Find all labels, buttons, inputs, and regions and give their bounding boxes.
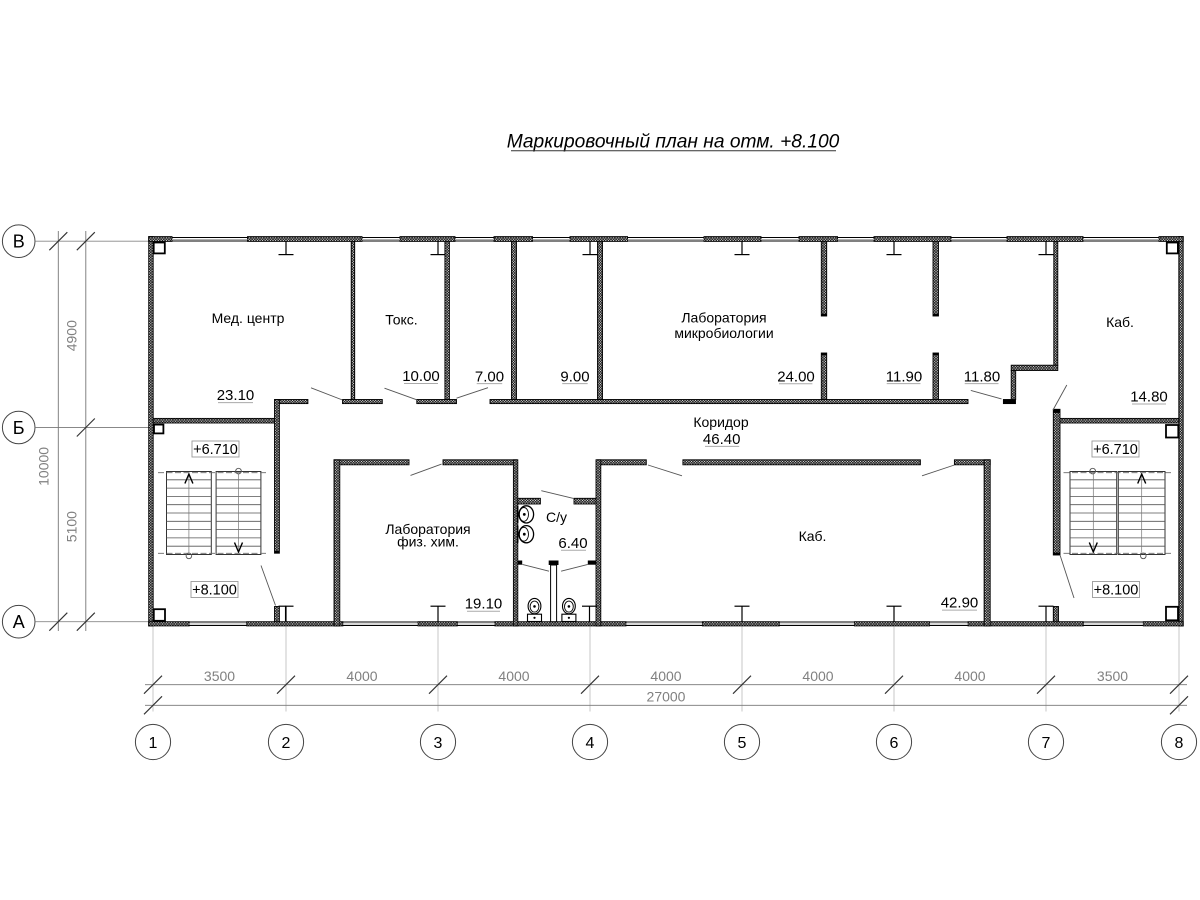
svg-text:4900: 4900 <box>63 320 79 351</box>
svg-text:10.00: 10.00 <box>402 368 440 385</box>
svg-text:4000: 4000 <box>346 668 377 684</box>
svg-text:11.80: 11.80 <box>964 368 1000 385</box>
svg-text:Лаборатория: Лаборатория <box>681 310 766 326</box>
svg-text:4: 4 <box>586 735 595 752</box>
svg-text:5100: 5100 <box>63 511 79 542</box>
svg-text:Б: Б <box>13 418 25 438</box>
svg-text:2: 2 <box>282 735 291 752</box>
svg-text:4000: 4000 <box>650 668 681 684</box>
svg-text:С/у: С/у <box>546 509 567 525</box>
svg-text:5: 5 <box>738 735 747 752</box>
svg-text:10000: 10000 <box>36 447 52 486</box>
svg-text:46.40: 46.40 <box>703 431 741 448</box>
svg-text:3500: 3500 <box>204 668 235 684</box>
svg-text:+6.710: +6.710 <box>1093 442 1138 458</box>
svg-text:14.80: 14.80 <box>1130 389 1168 406</box>
svg-text:Токс.: Токс. <box>385 312 417 328</box>
svg-text:19.10: 19.10 <box>465 596 503 613</box>
svg-text:11.90: 11.90 <box>886 368 922 385</box>
svg-text:6.40: 6.40 <box>558 535 587 552</box>
svg-text:7.00: 7.00 <box>475 368 504 385</box>
svg-text:27000: 27000 <box>647 689 686 705</box>
svg-text:9.00: 9.00 <box>560 368 589 385</box>
svg-text:4000: 4000 <box>498 668 529 684</box>
svg-text:микробиологии: микробиологии <box>674 325 773 341</box>
svg-text:8: 8 <box>1175 735 1184 752</box>
svg-text:Мед. центр: Мед. центр <box>212 310 285 326</box>
svg-text:6: 6 <box>890 735 899 752</box>
svg-text:24.00: 24.00 <box>777 368 815 385</box>
svg-text:Маркировочный план на отм. +8.: Маркировочный план на отм. +8.100 <box>507 132 840 153</box>
svg-text:физ. хим.: физ. хим. <box>397 534 459 550</box>
svg-text:Каб.: Каб. <box>1106 314 1134 330</box>
svg-text:42.90: 42.90 <box>941 594 979 611</box>
svg-text:А: А <box>13 612 25 632</box>
svg-text:3: 3 <box>434 735 443 752</box>
svg-text:+8.100: +8.100 <box>1094 583 1139 599</box>
svg-text:+8.100: +8.100 <box>192 583 237 599</box>
svg-text:4000: 4000 <box>802 668 833 684</box>
svg-text:+6.710: +6.710 <box>193 442 238 458</box>
svg-text:1: 1 <box>149 735 158 752</box>
svg-text:В: В <box>13 232 25 252</box>
svg-text:4000: 4000 <box>954 668 985 684</box>
svg-text:7: 7 <box>1042 735 1051 752</box>
svg-text:3500: 3500 <box>1097 668 1128 684</box>
svg-text:Каб.: Каб. <box>799 528 827 544</box>
svg-text:Коридор: Коридор <box>693 414 749 430</box>
svg-text:23.10: 23.10 <box>217 387 255 404</box>
